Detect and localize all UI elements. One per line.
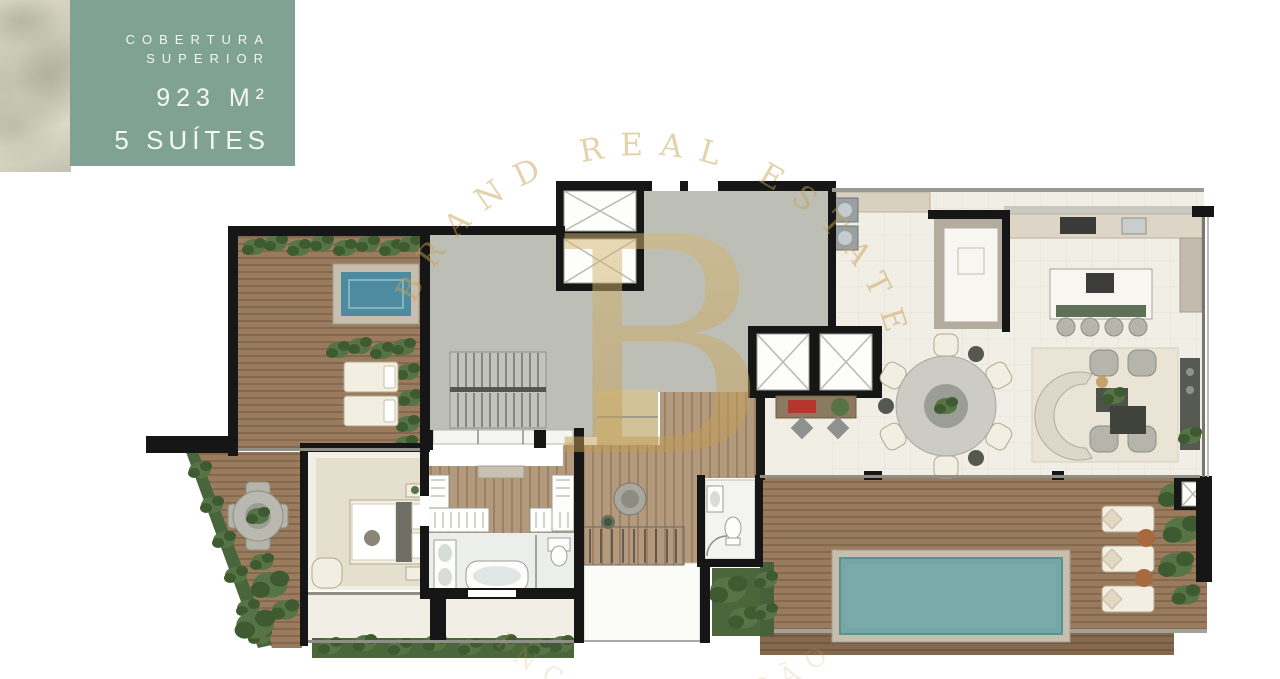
master-bed	[350, 500, 426, 564]
sun-lounger	[344, 362, 398, 392]
closet-bench	[478, 466, 524, 478]
cooktop	[1060, 217, 1096, 234]
balcony-floor	[308, 595, 432, 640]
toilet	[551, 546, 567, 566]
main-stairs	[580, 527, 684, 565]
side-table	[1137, 529, 1155, 547]
tall-cabinet	[1180, 238, 1202, 312]
watermark-monogram: B	[548, 174, 768, 523]
floor-plan-page: COBERTURA SUPERIOR 923 M² 5 SUÍTES	[0, 0, 1280, 679]
pantry	[934, 219, 1006, 329]
floor-plan: B BRAND REAL ESTATE INCORPORAÇÃO	[0, 0, 1280, 679]
pool	[832, 550, 1070, 642]
service-stairs	[450, 352, 546, 428]
kitchen-counter	[1004, 214, 1202, 238]
empty-room	[584, 563, 700, 641]
pool-loungers	[1102, 506, 1155, 612]
kitchen-sink	[1122, 218, 1146, 234]
hall-planter	[709, 568, 760, 636]
side-table	[1135, 569, 1153, 587]
sun-lounger	[344, 396, 398, 426]
